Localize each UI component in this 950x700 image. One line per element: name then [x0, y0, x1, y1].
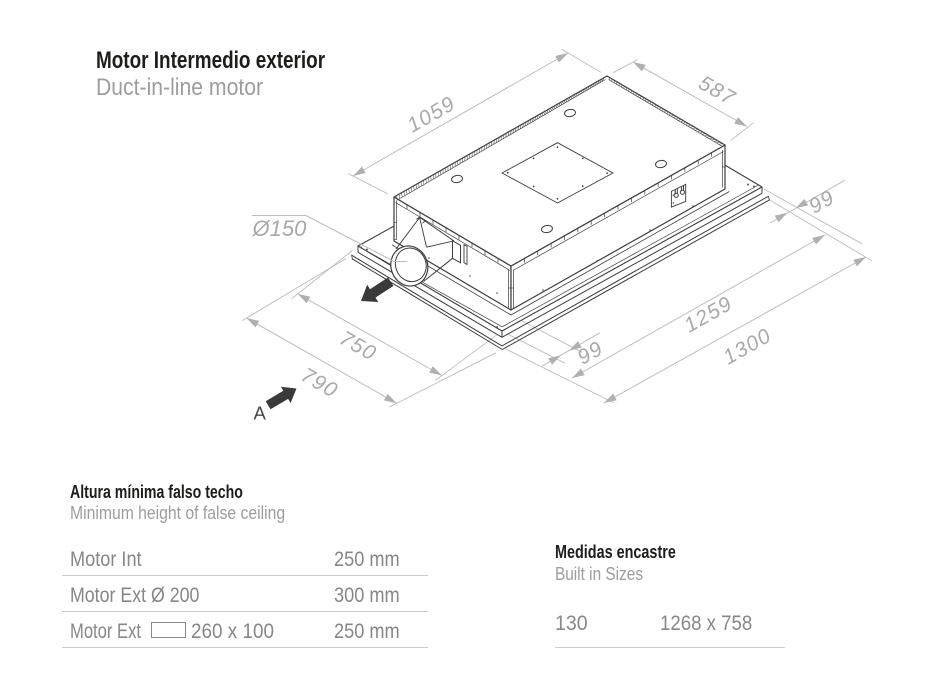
svg-text:587: 587	[694, 71, 739, 110]
svg-text:1300: 1300	[719, 324, 775, 369]
svg-text:99: 99	[574, 337, 608, 370]
svg-text:790: 790	[297, 364, 342, 403]
svg-text:A: A	[254, 403, 267, 424]
svg-text:750: 750	[335, 327, 380, 366]
svg-text:99: 99	[805, 186, 839, 219]
svg-text:1259: 1259	[680, 292, 736, 337]
svg-text:Ø150: Ø150	[252, 216, 308, 241]
